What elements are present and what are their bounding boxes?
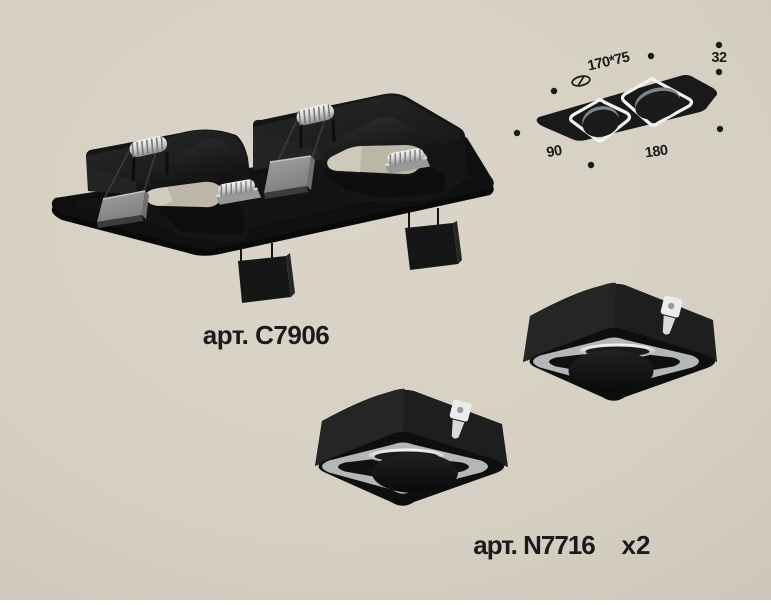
- svg-text:арт. N7716: арт. N7716: [473, 530, 595, 560]
- svg-text:x2: x2: [622, 530, 651, 560]
- svg-text:арт. C7906: арт. C7906: [203, 320, 330, 350]
- svg-text:90: 90: [545, 143, 563, 161]
- svg-text:180: 180: [644, 142, 669, 161]
- svg-text:32: 32: [711, 50, 727, 66]
